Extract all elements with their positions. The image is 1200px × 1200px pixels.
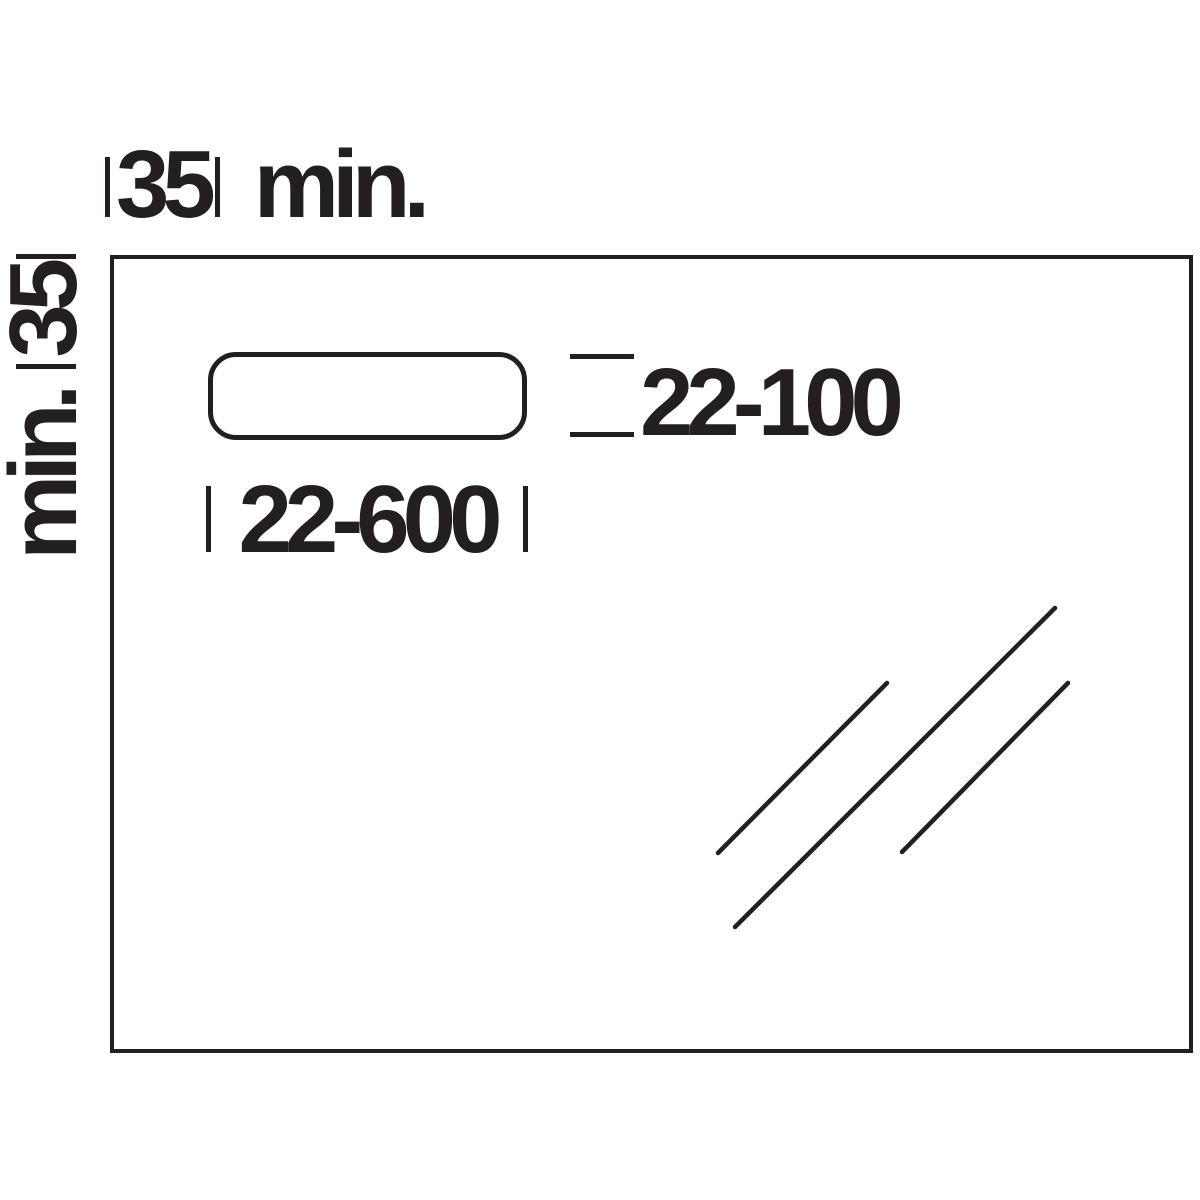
dimension-tick [16, 254, 76, 259]
dimension-tick [523, 486, 528, 552]
left-dimension-qualifier: min. [0, 391, 92, 560]
dimension-tick [570, 354, 634, 359]
cutout-slot [208, 352, 527, 440]
technical-drawing-canvas: 35 min. min. 35 22-600 22-100 [0, 0, 1200, 1200]
cutout-width-value: 22-600 [239, 472, 496, 568]
top-edge-distance-dimension: 35 min. [105, 137, 423, 233]
reflection-line [735, 608, 1055, 927]
dimension-tick [215, 157, 220, 217]
glass-reflection-lines [700, 590, 1080, 940]
dimension-tick [206, 486, 211, 552]
dimension-tick [570, 432, 634, 437]
left-edge-distance-dimension: min. 35 [0, 230, 92, 560]
reflection-line [902, 683, 1068, 852]
top-dimension-value: 35 [116, 137, 209, 233]
dimension-tick [105, 157, 110, 217]
cutout-height-value: 22-100 [640, 355, 897, 451]
top-dimension-qualifier: min. [254, 137, 423, 233]
cutout-width-dimension: 22-600 [206, 472, 528, 568]
reflection-line [718, 683, 887, 853]
left-dimension-value: 35 [0, 265, 92, 358]
dimension-tick [16, 364, 76, 369]
